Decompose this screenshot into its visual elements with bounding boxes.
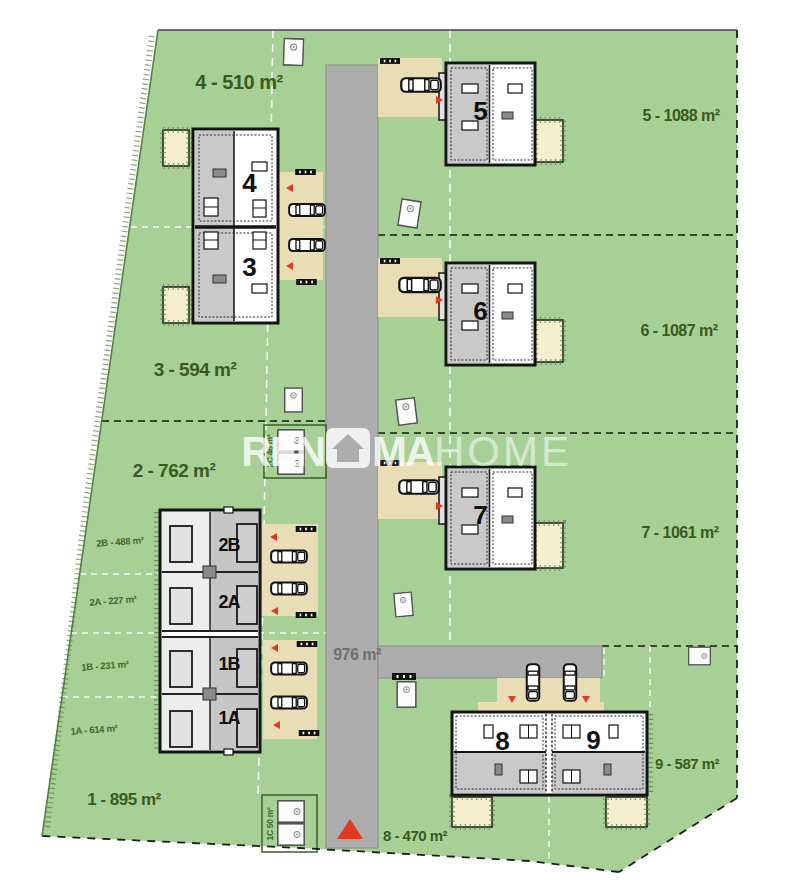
building-6-number: 6 [473,296,487,326]
utility-box-icon [394,592,413,617]
utility-box-icon [398,199,421,228]
gate-icon [380,258,400,264]
road-area-label: 976 m² [333,646,381,663]
terrace-patio [163,287,189,323]
gate-icon [299,730,320,736]
building-7 [439,467,535,569]
gate-icon [296,612,317,618]
gate-icon [380,58,400,64]
car-icon [271,696,307,708]
site-plan-page: 4 3 5 6 7 8 9 [0,0,785,891]
building-3-number: 3 [242,252,256,282]
plot-4-label: 4 - 510 m² [195,71,283,93]
unit-2A-number: 2A [218,592,240,612]
terrace-patio [534,523,563,568]
car-icon [399,278,440,292]
car-icon [271,550,307,562]
building-4-3: 4 3 [193,129,278,323]
car-icon [289,239,325,251]
utility-box-icon [285,388,303,412]
gate-icon [295,169,316,175]
gate-icon [392,673,416,680]
terrace-patio [163,130,189,166]
watermark-bold-right: MA [372,428,435,475]
gate-icon [296,279,317,285]
watermark-bold-left: REN [241,428,324,475]
car-icon [401,78,440,91]
utility-box-icon [278,801,304,822]
utility-box-icon [397,682,416,707]
utility-box-icon [689,647,711,665]
building-8-9: 8 9 [452,712,647,795]
watermark: REN MA HOME [241,428,572,475]
gate-icon [296,526,317,532]
utility-box-icon [396,398,418,426]
plot-3-label: 3 - 594 m² [154,359,237,380]
unit-1B-number: 1B [218,654,240,674]
plot-2-label: 2 - 762 m² [133,460,216,481]
car-icon [399,480,438,493]
site-plan: 4 3 5 6 7 8 9 [0,0,785,891]
car-icon [271,582,307,594]
watermark-light: HOME [434,428,572,475]
unit-1A-number: 1A [218,708,240,728]
car-icon [527,664,539,701]
building-5-number: 5 [473,96,487,126]
building-4-number: 4 [242,168,257,198]
plot-6-label: 6 - 1087 m² [640,322,717,339]
building-5 [439,63,535,165]
plot-8-label: 8 - 470 m² [383,827,448,844]
plot-5-label: 5 - 1088 m² [642,107,719,124]
subplot-1C-label: 1C 50 m² [265,807,275,841]
terrace-patio [452,797,492,827]
car-icon [271,662,307,674]
utility-box-icon [278,824,304,845]
terrace-patio [606,797,647,827]
plot-9-label: 9 - 587 m² [655,755,720,772]
building-9-number: 9 [586,725,600,755]
terrace-patio [535,120,563,162]
utility-box-icon [283,38,303,65]
building-8-number: 8 [495,726,509,756]
car-icon [564,664,576,701]
car-icon [289,204,325,216]
building-terraced-1-2: 2B 2A 1B 1A [160,507,260,755]
unit-2B-number: 2B [218,535,240,555]
plot-1-label: 1 - 895 m² [87,790,161,809]
gate-icon [297,641,318,647]
terrace-patio [535,320,563,362]
plot-7-label: 7 - 1061 m² [641,524,718,541]
building-6 [439,263,535,365]
building-7-number: 7 [473,500,487,530]
